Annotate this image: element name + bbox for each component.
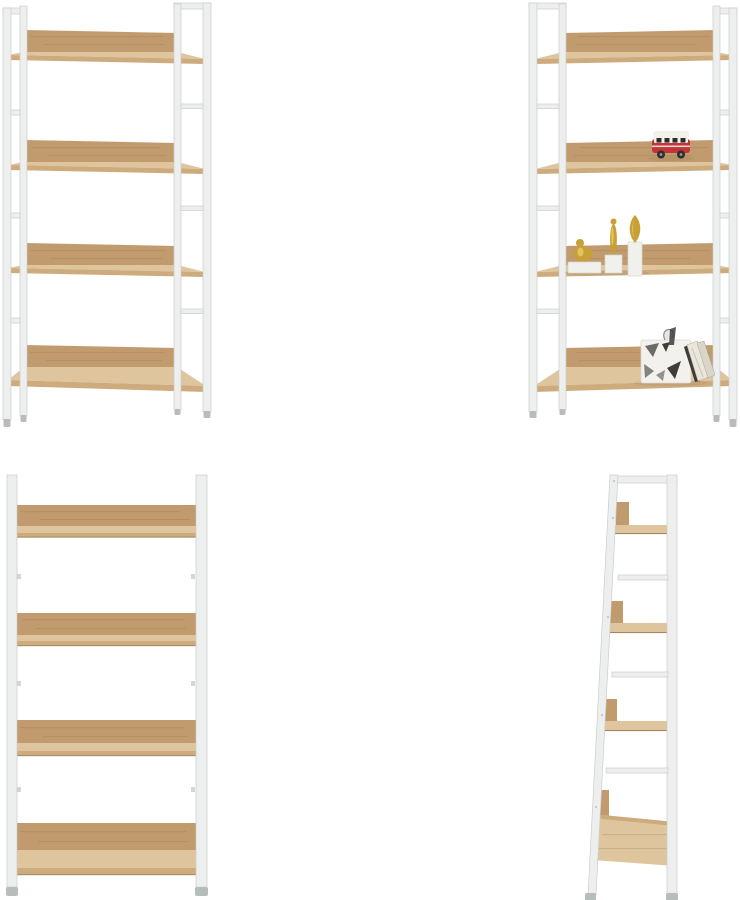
bus-window — [673, 138, 678, 143]
rung-end — [17, 787, 21, 792]
rung — [11, 110, 20, 115]
rung — [11, 318, 20, 323]
foot — [585, 893, 596, 900]
foot — [175, 409, 181, 415]
front-post — [203, 3, 211, 412]
angled-empty-view — [0, 0, 370, 450]
far-ladder-frame — [174, 3, 211, 418]
foot — [21, 415, 27, 422]
near-ladder-frame — [3, 6, 27, 427]
rung — [612, 672, 668, 677]
shelf-unit-front — [6, 475, 208, 896]
rung — [181, 104, 203, 109]
back-post — [174, 4, 181, 410]
rung-end — [191, 574, 195, 579]
foot — [666, 893, 678, 900]
rung-end — [191, 787, 195, 792]
screw — [595, 806, 597, 808]
photo-tile-angled-decorated — [370, 0, 740, 450]
rung — [11, 213, 20, 218]
rung — [181, 206, 203, 211]
rung-end — [191, 681, 195, 686]
backboard-edge — [616, 502, 629, 528]
rung-end — [17, 574, 21, 579]
shelf-2 — [12, 613, 200, 646]
rung — [181, 309, 203, 314]
bus-stripe — [652, 146, 690, 148]
shelf-unit-side — [585, 475, 678, 900]
rung — [618, 575, 668, 580]
rung — [606, 768, 668, 773]
rung-end — [17, 681, 21, 686]
side-view — [370, 450, 740, 900]
foot — [4, 419, 11, 427]
photo-tile-side-profile — [370, 450, 740, 900]
back-post — [20, 6, 27, 416]
shelf-1 — [12, 505, 200, 538]
photo-tile-front-empty — [0, 450, 370, 900]
screw — [613, 480, 615, 482]
shelf-4 — [12, 823, 200, 875]
screw — [601, 714, 603, 716]
front-view — [0, 450, 370, 900]
front-post — [667, 475, 677, 895]
product-photo-collage — [0, 0, 740, 900]
bus-window — [657, 138, 662, 143]
angled-decorated-view — [370, 0, 740, 450]
screw — [612, 517, 614, 519]
shelf-unit-angled — [3, 3, 211, 427]
fabric-storage-box — [641, 327, 691, 383]
figurine-bust-on-column — [628, 215, 642, 276]
screw — [607, 616, 609, 618]
foot — [6, 887, 18, 896]
decoration-storage-box-books — [633, 327, 715, 386]
front-post — [3, 8, 11, 420]
shelf-3 — [12, 720, 200, 756]
foot — [195, 887, 208, 896]
bus-window — [681, 138, 686, 143]
bus-window — [665, 138, 670, 143]
photo-tile-angled-empty — [0, 0, 370, 450]
foot — [204, 411, 211, 418]
